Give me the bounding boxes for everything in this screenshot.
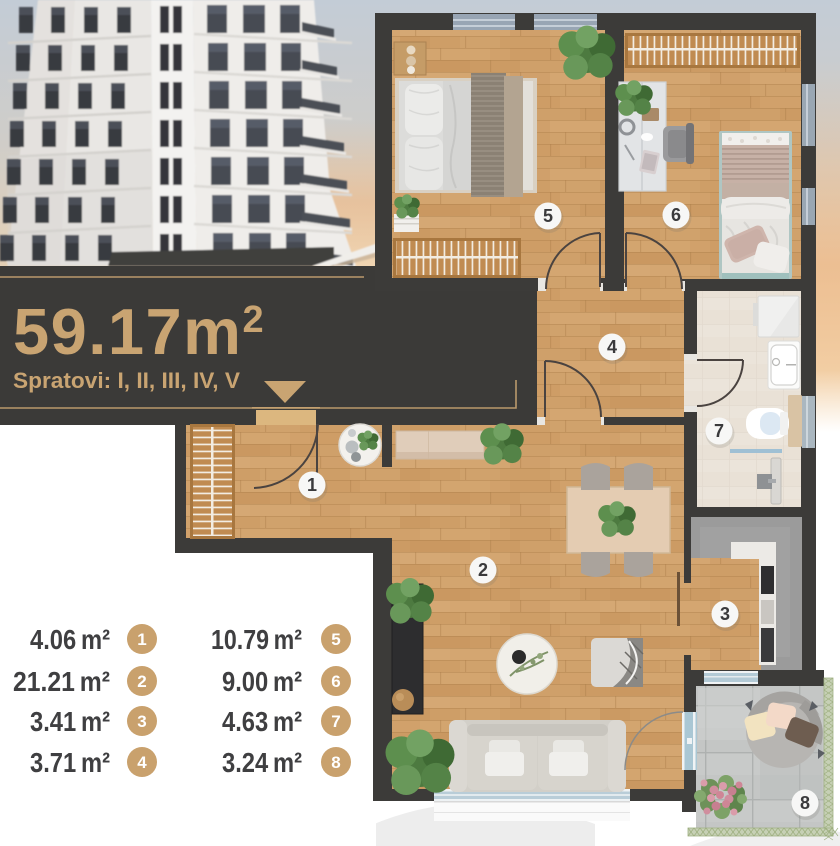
svg-text:7: 7 xyxy=(331,712,340,731)
svg-text:3.41 m²: 3.41 m² xyxy=(30,706,110,737)
svg-text:1: 1 xyxy=(137,630,146,649)
svg-text:2: 2 xyxy=(478,560,488,580)
svg-text:3.24 m²: 3.24 m² xyxy=(222,747,302,778)
svg-text:4.63 m²: 4.63 m² xyxy=(222,706,302,737)
svg-text:10.79 m²: 10.79 m² xyxy=(211,624,302,655)
svg-text:7: 7 xyxy=(714,421,724,441)
svg-text:5: 5 xyxy=(331,630,340,649)
svg-text:3: 3 xyxy=(720,604,730,624)
svg-text:1: 1 xyxy=(307,475,317,495)
svg-text:6: 6 xyxy=(671,205,681,225)
svg-text:3.71 m²: 3.71 m² xyxy=(30,747,110,778)
svg-text:2: 2 xyxy=(137,672,146,691)
svg-text:8: 8 xyxy=(800,793,810,813)
svg-text:3: 3 xyxy=(137,712,146,731)
svg-text:4: 4 xyxy=(607,337,617,357)
svg-text:Spratovi: I, II, III, IV, V: Spratovi: I, II, III, IV, V xyxy=(13,368,240,393)
svg-text:6: 6 xyxy=(331,672,340,691)
svg-text:59.17m2: 59.17m2 xyxy=(13,295,265,368)
svg-text:4: 4 xyxy=(137,753,147,772)
svg-text:5: 5 xyxy=(543,206,553,226)
svg-text:8: 8 xyxy=(331,753,340,772)
svg-text:4.06 m²: 4.06 m² xyxy=(30,624,110,655)
svg-text:21.21 m²: 21.21 m² xyxy=(13,666,110,697)
svg-text:9.00 m²: 9.00 m² xyxy=(222,666,302,697)
